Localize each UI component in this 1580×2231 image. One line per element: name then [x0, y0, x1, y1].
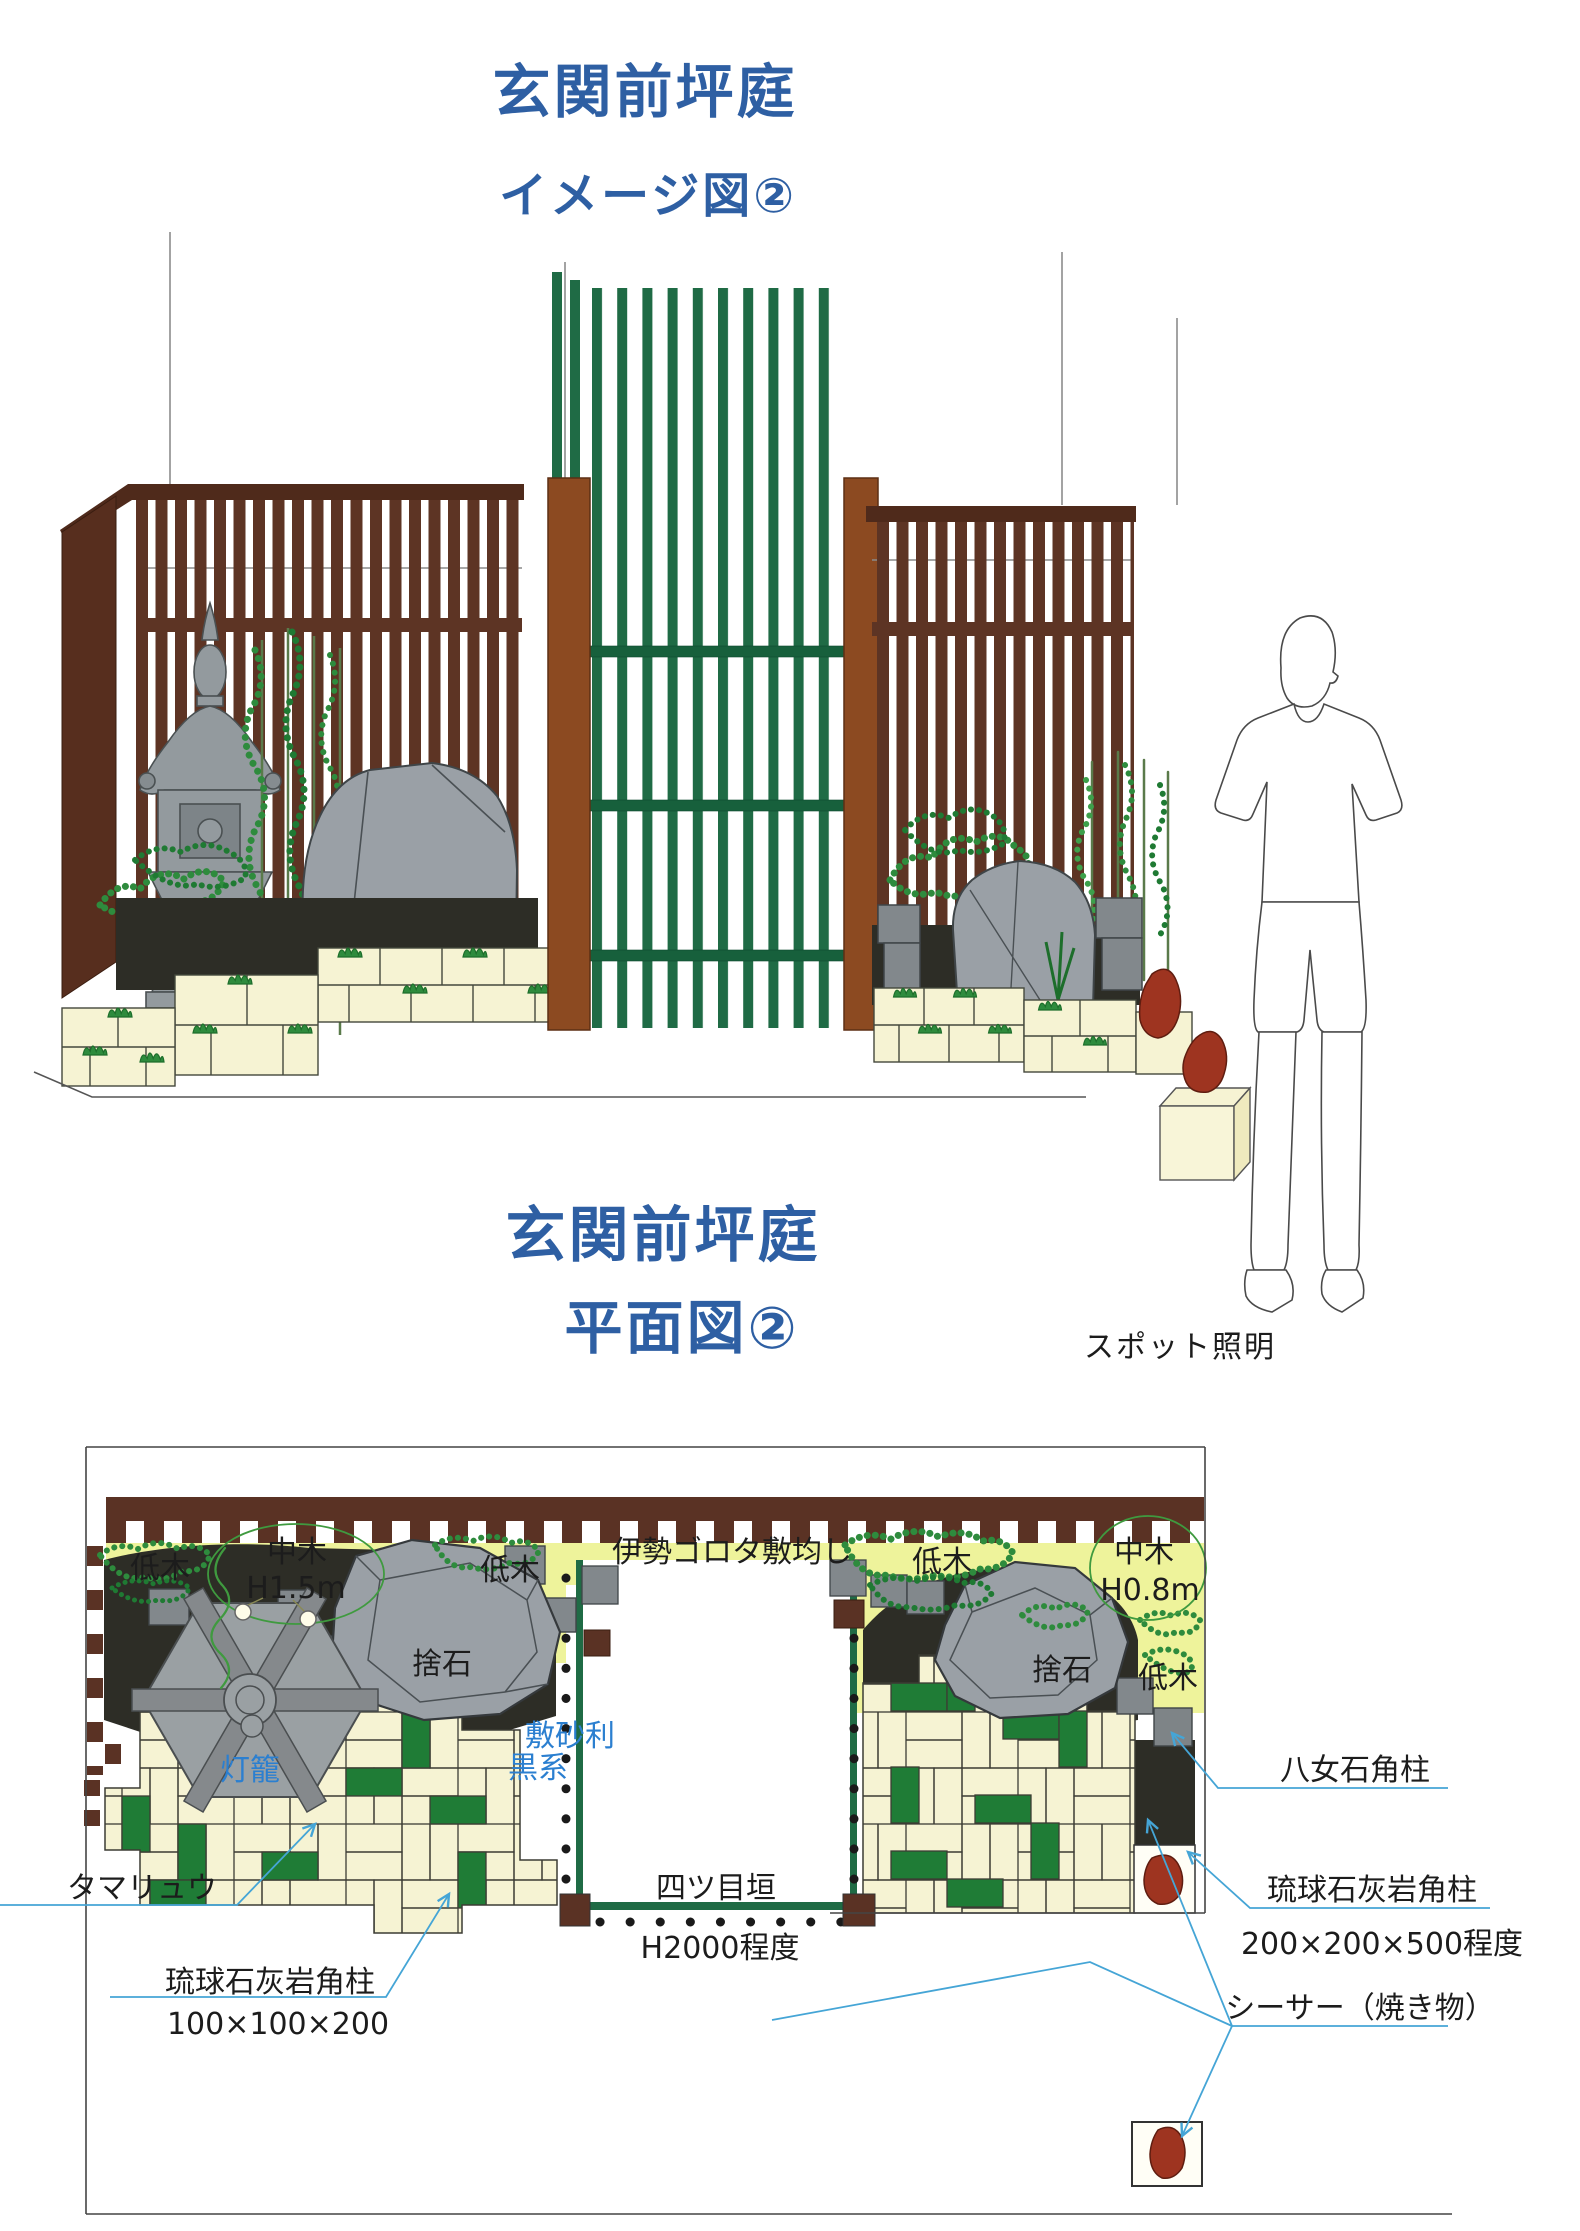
tamaryu-label: タマリュウ — [67, 1871, 217, 1906]
shisa-sample-box — [1132, 2122, 1202, 2186]
ryukyu-pillar-label-right: 琉球石灰岩角柱 — [1267, 1873, 1477, 1908]
garden-drawing-page: 玄関前坪庭 イメージ図② 玄関前坪庭 平面図② — [0, 0, 1580, 2231]
gravel-label-1: 敷砂利 — [525, 1719, 615, 1754]
yame-stone-pillar-plan — [1154, 1708, 1192, 1746]
ryukyu-large-size-label: 200×200×500程度 — [1241, 1927, 1523, 1962]
elevation-view — [34, 232, 1402, 1312]
shisa-label: シーサー（焼き物） — [1225, 1991, 1494, 2026]
drawing-canvas: 玄関前坪庭 イメージ図② 玄関前坪庭 平面図② — [0, 0, 1580, 2231]
dark-strip-right — [1135, 1740, 1195, 1845]
yotsume-fence-label: 四ツ目垣 — [656, 1871, 776, 1906]
plan-top-fence-rail — [106, 1497, 1204, 1521]
suteishi-label-left: 捨石 — [412, 1647, 472, 1682]
low-tree-label-left: 低木 — [130, 1551, 190, 1586]
low-tree-label-far-right: 低木 — [1138, 1661, 1198, 1696]
image-view-subtitle: イメージ図② — [499, 168, 797, 224]
mid-tree-label-right: 中木 — [1114, 1535, 1174, 1570]
shisa-plan — [1134, 1845, 1195, 1913]
ryukyu-small-size-label: 100×100×200 — [167, 2007, 389, 2042]
low-tree-label-right: 低木 — [912, 1545, 972, 1580]
yotsume-height-label: H2000程度 — [641, 1931, 800, 1966]
mid-tree-height-left: H1.5m — [246, 1571, 346, 1606]
ise-gorota-label: 伊勢ゴロタ敷均し — [612, 1535, 852, 1570]
human-figure — [1215, 616, 1402, 1312]
gravel-label-2: 黒系 — [508, 1751, 568, 1786]
yame-pillar-label: 八女石角柱 — [1280, 1753, 1430, 1788]
rock-right — [953, 861, 1095, 1008]
suteishi-label-right: 捨石 — [1032, 1653, 1092, 1688]
low-tree-label-mid: 低木 — [480, 1553, 540, 1588]
plan-view-title: 玄関前坪庭 — [506, 1201, 821, 1271]
mid-tree-label-left: 中木 — [267, 1535, 327, 1570]
plan-view: スポット照明 低木 中木 H1.5m 低木 伊勢ゴロタ敷均し 低木 中木 H0.… — [0, 1330, 1523, 2214]
center-gate — [548, 272, 878, 1030]
ground-line — [34, 1072, 1086, 1097]
mid-tree-height-right: H0.8m — [1100, 1573, 1200, 1608]
image-view-title: 玄関前坪庭 — [492, 58, 797, 126]
lantern-label: 灯籠 — [220, 1753, 280, 1788]
spot-lighting-label: スポット照明 — [1084, 1330, 1276, 1365]
ryukyu-pillar-label-left: 琉球石灰岩角柱 — [165, 1965, 375, 2000]
plan-view-subtitle: 平面図② — [564, 1294, 799, 1362]
gate-post-left — [548, 478, 590, 1030]
